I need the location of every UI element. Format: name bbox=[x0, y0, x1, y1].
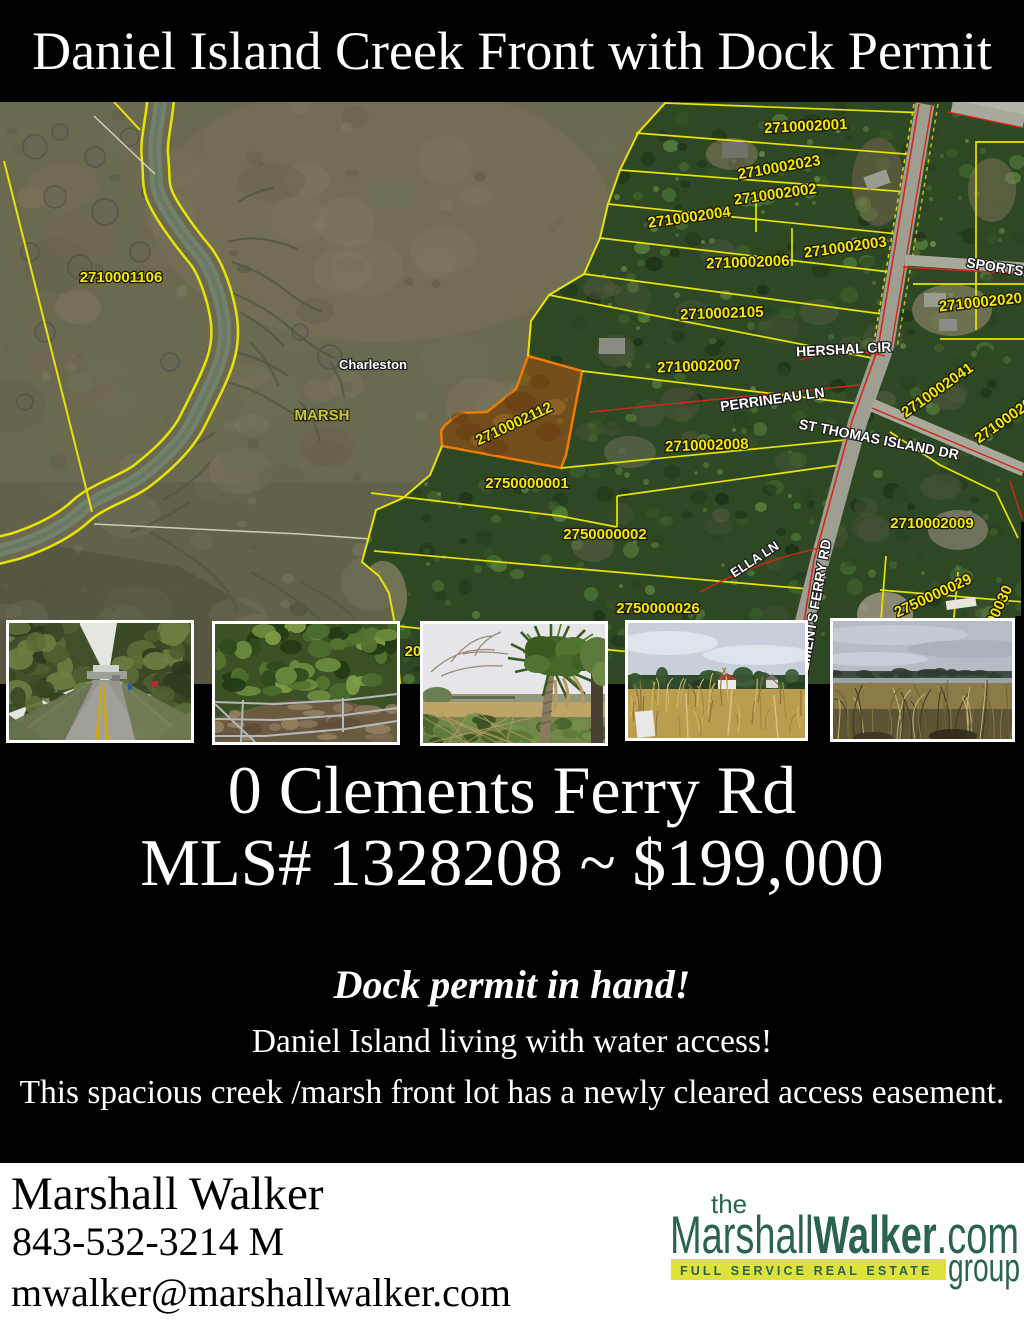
svg-text:MARSH: MARSH bbox=[295, 407, 350, 424]
svg-text:2750000002: 2750000002 bbox=[563, 526, 646, 543]
svg-text:FULL SERVICE REAL ESTATE: FULL SERVICE REAL ESTATE bbox=[680, 1264, 932, 1278]
svg-text:2710002007: 2710002007 bbox=[657, 357, 741, 377]
svg-text:20: 20 bbox=[405, 643, 422, 660]
svg-text:2710002009: 2710002009 bbox=[890, 515, 973, 532]
svg-text:group: group bbox=[948, 1246, 1020, 1290]
svg-text:Charleston: Charleston bbox=[339, 357, 407, 372]
svg-text:2750000026: 2750000026 bbox=[616, 600, 699, 617]
svg-text:2710001106: 2710001106 bbox=[80, 269, 163, 286]
svg-text:2750000001: 2750000001 bbox=[485, 475, 568, 492]
svg-text:2710002105: 2710002105 bbox=[680, 304, 764, 324]
svg-text:2710002008: 2710002008 bbox=[665, 436, 749, 456]
svg-text:2710002006: 2710002006 bbox=[706, 253, 790, 273]
